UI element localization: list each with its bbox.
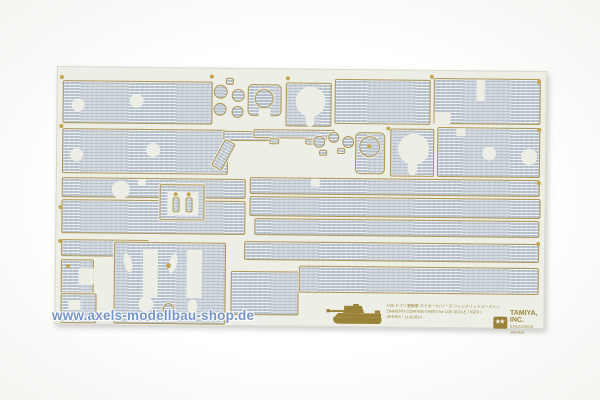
zimmerit-piece bbox=[244, 241, 539, 263]
logo-stars: ★★ bbox=[495, 319, 504, 326]
die-cut-notch bbox=[456, 128, 465, 136]
registration-dot bbox=[537, 181, 541, 185]
zimmerit-piece bbox=[61, 199, 245, 235]
zimmerit-piece bbox=[334, 79, 430, 125]
registration-dot bbox=[166, 263, 171, 268]
zimmerit-piece bbox=[62, 177, 246, 199]
die-cut-hole bbox=[130, 94, 144, 108]
product-photo: ●スペアシート・(35-IN 4 SIZE) bbox=[0, 0, 600, 400]
disc-piece bbox=[213, 103, 226, 116]
die-cut-notch bbox=[305, 116, 314, 127]
zimmerit-piece bbox=[62, 80, 212, 125]
die-cut-hole bbox=[482, 146, 496, 160]
zimmerit-piece bbox=[250, 177, 540, 197]
registration-dot bbox=[66, 264, 70, 268]
die-cut-notch bbox=[79, 268, 94, 284]
die-cut-hole bbox=[112, 181, 130, 199]
registration-dot bbox=[60, 75, 64, 79]
die-cut-hole bbox=[398, 134, 429, 165]
die-cut-hole bbox=[521, 149, 537, 165]
registration-dot bbox=[58, 239, 62, 243]
zimmerit-piece bbox=[299, 266, 539, 296]
zimmerit-piece bbox=[62, 128, 228, 175]
die-cut-hole bbox=[295, 87, 325, 117]
registration-dot bbox=[367, 144, 371, 148]
zimmerit-piece bbox=[437, 127, 541, 178]
zimmerit-piece bbox=[247, 84, 281, 116]
disc-piece bbox=[328, 132, 339, 143]
die-cut-notch bbox=[311, 179, 320, 187]
disc-piece bbox=[313, 136, 325, 148]
zimmerit-piece bbox=[433, 78, 540, 125]
tamiya-logo: ★★ TAMIYA, INC. SHIZUOKA JAPAN bbox=[493, 310, 543, 336]
registration-dot bbox=[59, 124, 63, 128]
zimmerit-piece bbox=[269, 138, 279, 144]
zimmerit-coating-sheet: ●スペアシート・(35-IN 4 SIZE) bbox=[54, 66, 547, 329]
registration-dot bbox=[430, 75, 434, 79]
tiger-i-tank-silhouette-icon bbox=[326, 301, 384, 333]
zimmerit-piece bbox=[319, 150, 327, 156]
disc-piece bbox=[232, 89, 245, 102]
product-label-series: SERIES・11421614 bbox=[386, 314, 499, 321]
registration-dot bbox=[536, 242, 540, 246]
shop-watermark: www.axels-modellbau-shop.de bbox=[52, 308, 254, 323]
die-cut-slot bbox=[143, 249, 159, 297]
zimmerit-piece bbox=[355, 132, 385, 174]
registration-dot bbox=[537, 80, 541, 84]
registration-dot bbox=[386, 126, 390, 130]
die-cut-hole bbox=[72, 98, 85, 111]
disc-piece bbox=[255, 89, 274, 108]
die-cut-notch bbox=[258, 109, 270, 117]
zimmerit-piece bbox=[172, 197, 179, 212]
zimmerit-piece bbox=[159, 184, 204, 220]
disc-piece bbox=[342, 136, 354, 148]
zimmerit-piece bbox=[249, 196, 540, 219]
die-cut-hole bbox=[70, 148, 83, 161]
die-cut-notch bbox=[477, 79, 485, 101]
brand-subtext: SHIZUOKA JAPAN bbox=[510, 324, 544, 336]
registration-dot bbox=[210, 75, 214, 79]
die-cut-crescent bbox=[122, 252, 134, 273]
die-cut-notch bbox=[434, 112, 450, 124]
registration-dot bbox=[537, 128, 541, 132]
registration-dot bbox=[174, 192, 178, 196]
registration-dot bbox=[187, 192, 191, 196]
zimmerit-piece bbox=[254, 218, 539, 238]
tamiya-twin-star-logo-icon: ★★ bbox=[493, 316, 507, 328]
zimmerit-piece bbox=[285, 82, 331, 126]
zimmerit-piece bbox=[185, 197, 192, 212]
product-label: 1/35 ドイツ重戦車 タイガーⅠシリーズ ツィンメリットコーティングシートセッ… bbox=[386, 303, 500, 330]
disc-piece bbox=[231, 106, 243, 118]
die-cut-notch bbox=[138, 179, 146, 186]
brand-name: TAMIYA, INC. bbox=[510, 310, 544, 324]
die-cut-slot bbox=[187, 249, 203, 297]
zimmerit-piece bbox=[337, 148, 345, 154]
zimmerit-piece bbox=[390, 128, 435, 176]
zimmerit-piece bbox=[61, 259, 94, 293]
zimmerit-piece bbox=[226, 78, 234, 85]
registration-dot bbox=[59, 205, 63, 209]
die-cut-notch bbox=[408, 164, 417, 176]
die-cut-hole bbox=[146, 143, 160, 157]
registration-dot bbox=[286, 76, 290, 80]
disc-piece bbox=[214, 85, 228, 99]
